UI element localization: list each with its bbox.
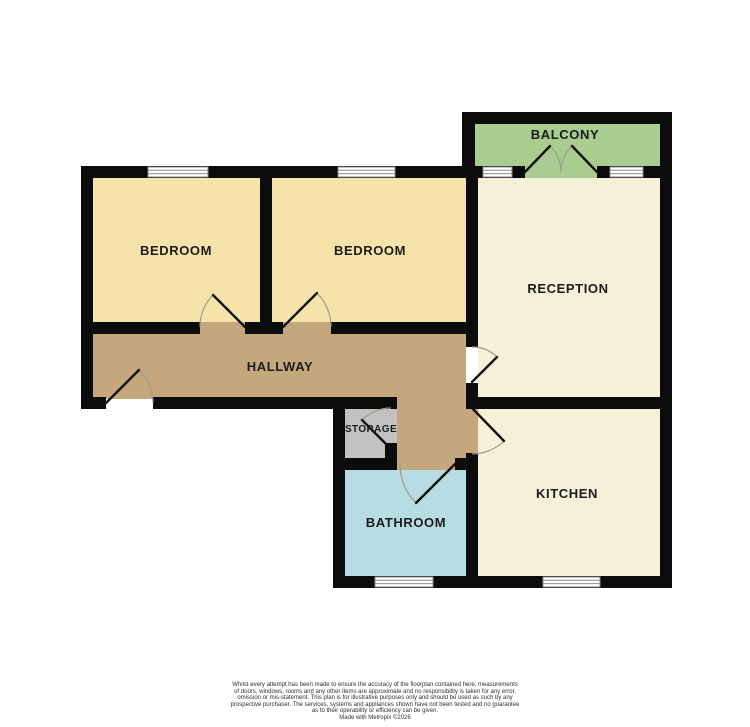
storage-label: STORAGE — [345, 424, 397, 435]
window-reception-left — [483, 167, 512, 177]
window-bedroom1-frame — [148, 167, 208, 177]
window-bathroom-frame — [375, 577, 433, 587]
floorplan-svg: BALCONY BEDROOM BEDROOM RECEPTION HALLWA… — [0, 0, 750, 727]
wall-bedroom1-bottom — [81, 322, 200, 334]
disclaimer-text: Whilst every attempt has been made to en… — [0, 682, 750, 721]
hallway-label: HALLWAY — [247, 359, 314, 374]
wall-reception-left-upper — [466, 166, 478, 347]
room-floors — [93, 124, 660, 576]
wall-hallway-bottom — [153, 397, 397, 409]
window-bathroom — [375, 577, 433, 587]
disclaimer-credit: Made with Metropix ©2026 — [0, 715, 750, 722]
bedroom1-door-gap — [200, 322, 245, 334]
bedroom2-label: BEDROOM — [334, 243, 406, 258]
wall-bedroom-divider — [260, 166, 272, 334]
window-bedroom2-frame — [338, 167, 395, 177]
window-kitchen-frame — [543, 577, 600, 587]
bedroom1-label: BEDROOM — [140, 243, 212, 258]
bedroom2-door-gap — [283, 322, 331, 334]
wall-reception-left-stub — [466, 383, 478, 409]
wall-storage-right-stub — [385, 443, 397, 470]
wall-kitchen-left-lower — [466, 453, 478, 588]
window-kitchen — [543, 577, 600, 587]
window-bedroom1 — [148, 167, 208, 177]
reception-label: RECEPTION — [527, 281, 608, 296]
bathroom-label: BATHROOM — [366, 515, 446, 530]
wall-balcony-top — [462, 112, 672, 124]
wall-right-outer — [660, 112, 672, 588]
window-bedroom2 — [338, 167, 395, 177]
window-reception-left-frame — [483, 167, 512, 177]
balcony-label: BALCONY — [531, 127, 599, 142]
floorplan-page: BALCONY BEDROOM BEDROOM RECEPTION HALLWA… — [0, 0, 750, 727]
wall-reception-bottom — [467, 397, 672, 409]
wall-bedroom2-bottom — [331, 322, 478, 334]
window-reception-right-frame — [610, 167, 643, 177]
wall-bathroom-left-outer — [333, 397, 345, 588]
kitchen-label: KITCHEN — [536, 486, 598, 501]
wall-left-outer — [81, 166, 93, 409]
wall-balcony-left — [462, 112, 475, 178]
window-reception-right — [610, 167, 643, 177]
